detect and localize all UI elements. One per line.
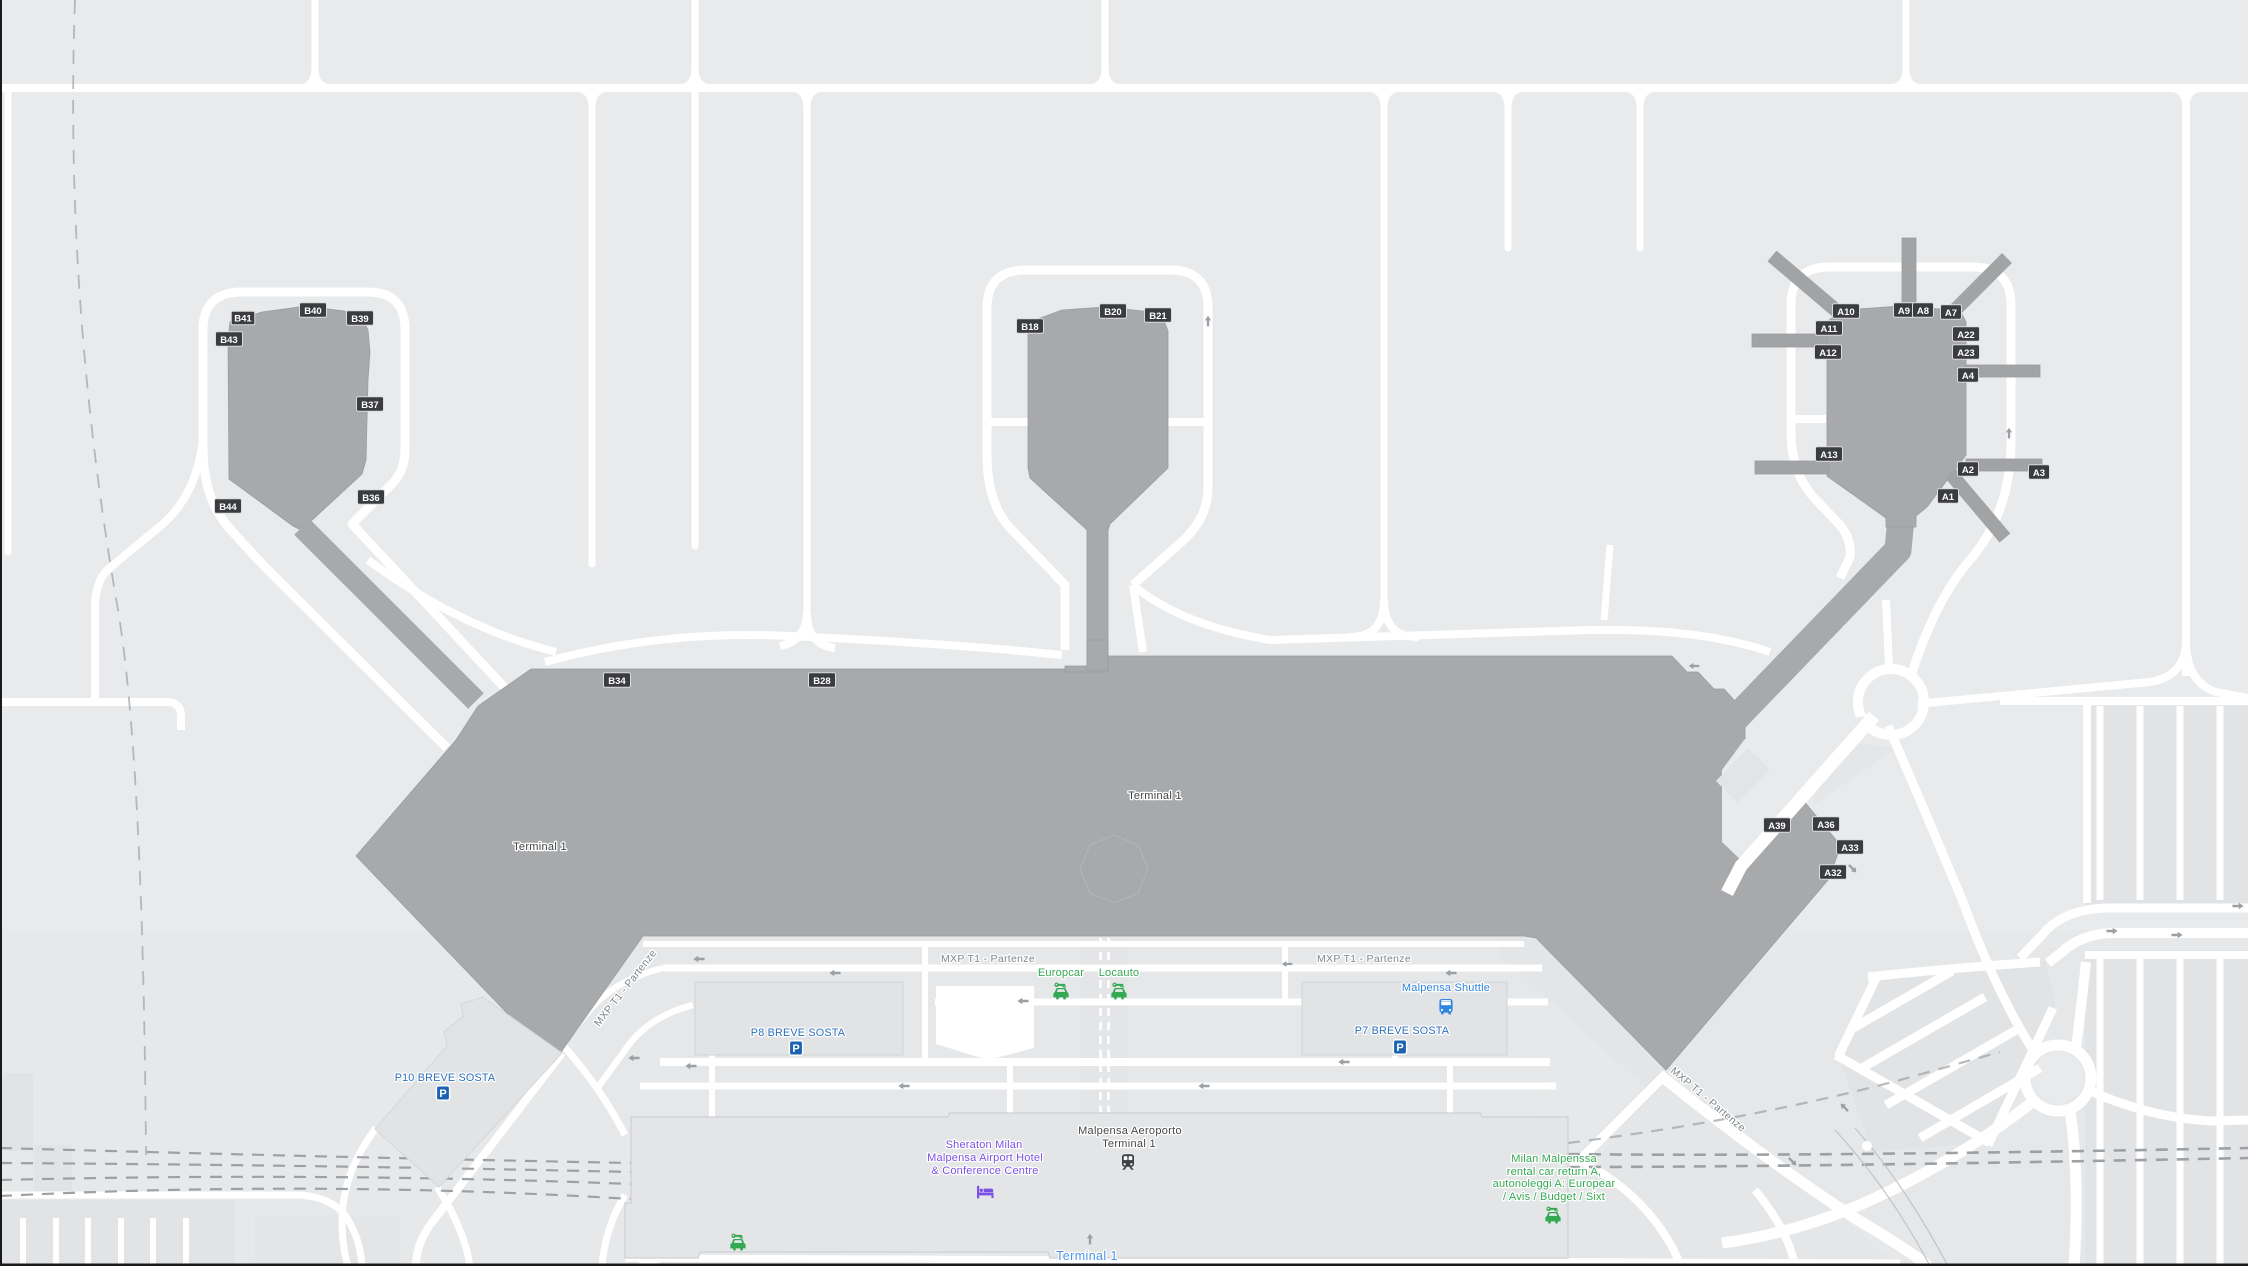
svg-text:B21: B21 — [1149, 311, 1167, 322]
svg-text:Locauto: Locauto — [1099, 967, 1140, 979]
svg-text:& Conference Centre: & Conference Centre — [931, 1165, 1038, 1177]
svg-text:A36: A36 — [1817, 820, 1834, 831]
svg-text:A13: A13 — [1820, 450, 1837, 461]
svg-text:MXP T1 - Partenze: MXP T1 - Partenze — [941, 953, 1035, 965]
svg-text:A23: A23 — [1957, 348, 1974, 359]
svg-text:Malpensa Shuttle: Malpensa Shuttle — [1402, 982, 1490, 994]
svg-text:A8: A8 — [1917, 306, 1929, 317]
svg-text:B43: B43 — [220, 335, 237, 346]
svg-text:Milan Malpenssa: Milan Malpenssa — [1511, 1153, 1597, 1165]
svg-text:Malpensa Airport Hotel: Malpensa Airport Hotel — [927, 1152, 1043, 1164]
svg-text:A33: A33 — [1841, 843, 1858, 854]
svg-text:B18: B18 — [1021, 322, 1038, 333]
svg-text:MXP T1 - Partenze: MXP T1 - Partenze — [1317, 953, 1411, 965]
svg-text:A1: A1 — [1942, 492, 1955, 503]
svg-text:P8 BREVE SOSTA: P8 BREVE SOSTA — [751, 1027, 846, 1039]
svg-text:B36: B36 — [362, 493, 379, 504]
svg-text:rental car return A,: rental car return A, — [1507, 1166, 1602, 1178]
svg-text:A4: A4 — [1962, 371, 1975, 382]
svg-text:Malpensa Aeroporto: Malpensa Aeroporto — [1078, 1125, 1182, 1137]
svg-text:A11: A11 — [1821, 324, 1839, 335]
svg-text:Europcar: Europcar — [1038, 967, 1084, 979]
svg-text:A39: A39 — [1768, 821, 1785, 832]
svg-text:B20: B20 — [1104, 307, 1121, 318]
svg-text:Terminal 1: Terminal 1 — [513, 841, 567, 853]
svg-text:B37: B37 — [361, 400, 378, 411]
svg-text:A12: A12 — [1819, 348, 1836, 359]
svg-text:B34: B34 — [608, 676, 626, 687]
svg-text:A3: A3 — [2033, 468, 2045, 479]
svg-text:A2: A2 — [1962, 465, 1974, 476]
svg-text:A9: A9 — [1898, 306, 1910, 317]
svg-text:Terminal 1: Terminal 1 — [1102, 1138, 1156, 1150]
svg-text:P10 BREVE SOSTA: P10 BREVE SOSTA — [395, 1072, 496, 1084]
svg-text:A10: A10 — [1837, 307, 1854, 318]
svg-text:B39: B39 — [351, 314, 368, 325]
svg-text:P7 BREVE SOSTA: P7 BREVE SOSTA — [1355, 1025, 1450, 1037]
svg-text:/ Avis / Budget / Sixt: / Avis / Budget / Sixt — [1503, 1191, 1605, 1203]
svg-text:A32: A32 — [1824, 868, 1841, 879]
svg-text:Terminal 1: Terminal 1 — [1128, 790, 1182, 802]
svg-text:A22: A22 — [1957, 330, 1974, 341]
svg-text:B44: B44 — [219, 502, 237, 513]
svg-text:B28: B28 — [813, 676, 830, 687]
svg-text:Sheraton Milan: Sheraton Milan — [946, 1139, 1023, 1151]
svg-text:B40: B40 — [304, 306, 321, 317]
svg-text:autonoleggi A: Europear: autonoleggi A: Europear — [1493, 1178, 1616, 1190]
svg-text:B41: B41 — [234, 314, 252, 325]
svg-text:Terminal 1: Terminal 1 — [1056, 1249, 1118, 1263]
svg-text:A7: A7 — [1945, 308, 1957, 319]
